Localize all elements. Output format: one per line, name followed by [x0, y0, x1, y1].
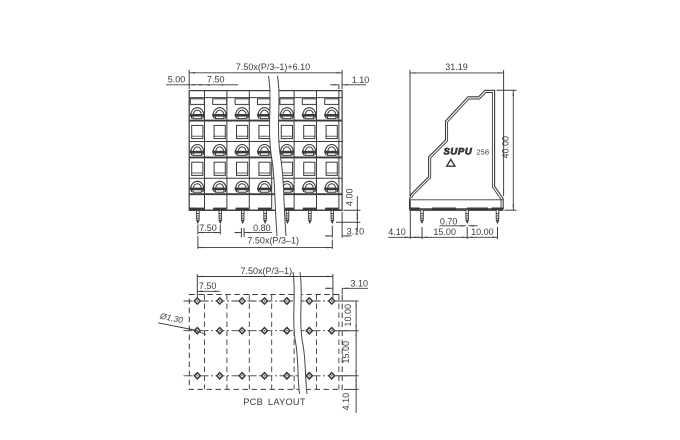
svg-text:7.50: 7.50: [207, 75, 225, 85]
svg-text:7.50x(P/3–1)+6.10: 7.50x(P/3–1)+6.10: [236, 62, 310, 72]
svg-text:31.19: 31.19: [445, 62, 468, 72]
svg-text:15.00: 15.00: [433, 227, 456, 237]
svg-text:PCB LAYOUT: PCB LAYOUT: [243, 397, 306, 407]
svg-text:SUPU: SUPU: [444, 147, 473, 158]
svg-text:40.00: 40.00: [501, 136, 511, 159]
svg-text:0.70: 0.70: [440, 217, 458, 227]
svg-text:4.10: 4.10: [388, 227, 406, 237]
svg-text:15.00: 15.00: [341, 341, 351, 364]
svg-text:258: 258: [477, 147, 490, 156]
svg-text:4.00: 4.00: [345, 189, 355, 207]
svg-text:10.00: 10.00: [471, 227, 494, 237]
svg-text:7.50: 7.50: [199, 223, 217, 233]
svg-text:1.10: 1.10: [352, 75, 370, 85]
svg-text:5.00: 5.00: [168, 75, 186, 85]
svg-text:3.10: 3.10: [347, 226, 365, 236]
svg-text:4.10: 4.10: [341, 393, 351, 411]
svg-text:7.50x(P/3–1): 7.50x(P/3–1): [247, 236, 299, 246]
svg-text:10.00: 10.00: [343, 304, 353, 327]
svg-text:7.50: 7.50: [199, 281, 217, 291]
svg-text:3.10: 3.10: [351, 279, 369, 289]
svg-text:7.50x(P/3–1): 7.50x(P/3–1): [241, 266, 293, 276]
svg-text:0.80: 0.80: [253, 223, 271, 233]
